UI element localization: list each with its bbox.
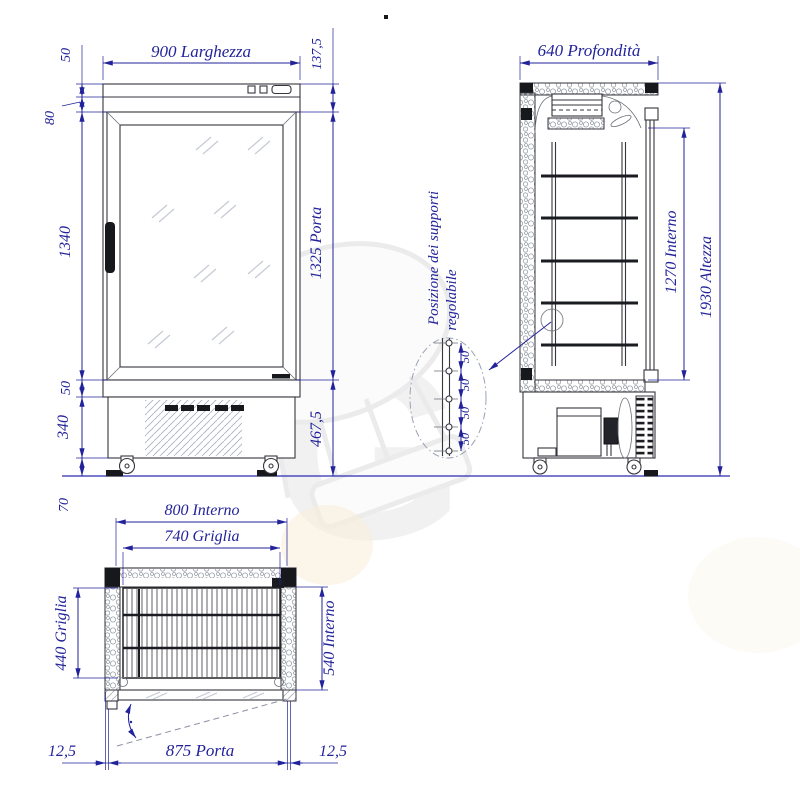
door-swing-arc (128, 704, 136, 738)
drawing-canvas: G (0, 0, 800, 800)
side-view (520, 83, 658, 477)
plan-corner-block (272, 578, 284, 588)
compressor (557, 408, 601, 456)
door-handle (105, 222, 115, 273)
dim-head-height: 137,5 (310, 38, 325, 70)
machine-compartment-side (523, 392, 655, 458)
dim-door-height: 1325 Porta (308, 207, 325, 279)
door-swing-dashed (117, 699, 287, 746)
watermark-blob-2 (688, 537, 800, 653)
plan-view (105, 568, 296, 746)
front-view (103, 84, 300, 477)
detail-label-line1: Posizione dei supporti (426, 191, 442, 326)
plan-right-wall (281, 587, 296, 690)
dim-spacing-2: 50 (458, 378, 472, 391)
evaporator-fan (609, 101, 632, 129)
dim-body-height: 1340 (57, 226, 74, 258)
dim-width: 900 Larghezza (151, 42, 251, 61)
dim-plinth: 50 (59, 381, 74, 395)
dim-door-inset-left: 12,5 (48, 743, 76, 760)
dim-door-inset-right: 12,5 (319, 743, 347, 760)
door-hinge-block (107, 701, 117, 709)
wire-grid-shelf (123, 588, 280, 678)
glass-door (105, 112, 296, 380)
dim-castor-height: 70 (57, 498, 72, 512)
dim-total-height: 1930 Altezza (698, 236, 715, 318)
side-top-wall (520, 83, 658, 95)
dim-internal-height: 1270 Interno (663, 210, 680, 293)
side-casters (533, 458, 658, 477)
dim-internal-width: 800 Interno (164, 502, 239, 519)
technical-drawing-page: G (0, 0, 800, 800)
plan-left-wall (105, 587, 120, 690)
dim-spacing-1: 50 (458, 350, 472, 363)
dim-internal-depth: 540 Interno (321, 600, 338, 675)
dim-depth: 640 Profondità (538, 41, 641, 60)
side-back-wall (520, 93, 535, 392)
condenser-coil (636, 396, 653, 458)
dim-mid-band: 80 (43, 111, 58, 125)
front-casters (106, 456, 279, 477)
dim-door-width: 875 Porta (166, 741, 234, 760)
page-mark-dot (384, 15, 388, 19)
dim-grid-depth: 440 Griglia (53, 595, 70, 670)
dim-grid-width: 740 Griglia (164, 528, 239, 545)
side-door-glass (644, 108, 658, 382)
side-floor (535, 380, 645, 392)
dim-top-band: 50 (59, 48, 74, 62)
dim-machine-height: 340 (55, 415, 72, 440)
plan-door (105, 690, 296, 709)
fan-motor (604, 418, 618, 444)
machine-compartment-front (108, 397, 295, 458)
detail-label-line2: regolabile (444, 269, 460, 330)
dim-spacing-4: 50 (458, 432, 472, 445)
door-sill-mark (272, 374, 290, 379)
dim-lower-height: 467,5 (308, 411, 325, 447)
vent-slots (165, 405, 244, 411)
evaporator-unit (548, 94, 604, 129)
dim-spacing-3: 50 (458, 406, 472, 419)
